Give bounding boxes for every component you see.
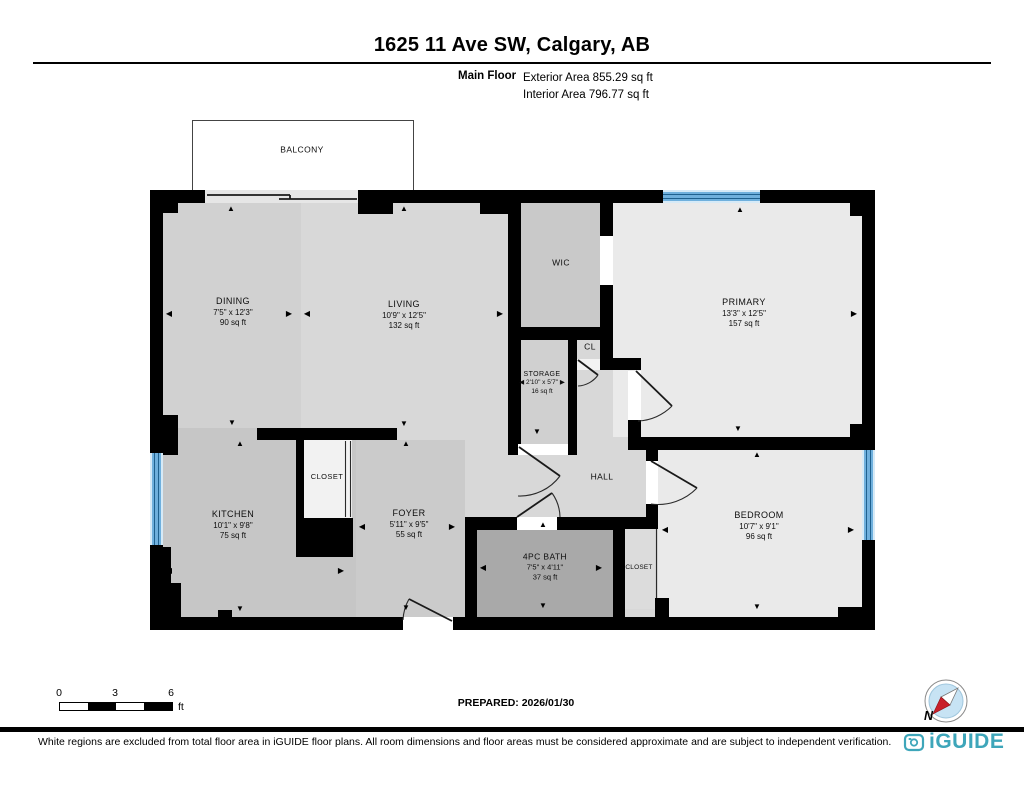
dim-arrow-left-icon: ◀ — [519, 379, 524, 386]
room-label-foyer: FOYER 5'11" x 9'5" 55 sq ft — [390, 508, 429, 540]
room-label-hall: HALL — [591, 471, 614, 482]
door-opening — [628, 371, 641, 420]
wall — [150, 617, 875, 630]
dim-arrow-up-icon: ▲ — [753, 451, 761, 459]
dim-arrow-right-icon: ▶ — [560, 379, 565, 386]
dim-arrow-down-icon: ▼ — [402, 604, 410, 612]
footer-bar — [0, 727, 1024, 732]
dim-arrow-up-icon: ▲ — [402, 440, 410, 448]
door-opening — [403, 617, 453, 630]
wall — [613, 517, 625, 630]
scale-unit: ft — [178, 701, 184, 713]
dim-arrow-down-icon: ▼ — [228, 419, 236, 427]
dim-arrow-up-icon: ▲ — [736, 206, 744, 214]
dim-arrow-left-icon: ◀ — [166, 310, 172, 318]
wall — [257, 428, 397, 440]
wall — [296, 440, 304, 518]
dim-arrow-right-icon: ▶ — [449, 523, 455, 531]
wall — [646, 437, 658, 461]
room-label-cl: CL — [584, 341, 596, 352]
room-label-bath: 4PC BATH 7'5" x 4'11" 37 sq ft — [523, 552, 567, 583]
door-opening — [518, 444, 568, 455]
dim-arrow-left-icon: ◀ — [166, 567, 172, 575]
window — [150, 453, 163, 545]
window — [862, 450, 875, 540]
footer-disclaimer: White regions are excluded from total fl… — [38, 736, 891, 748]
wall — [557, 517, 614, 530]
room-label-closet-entry: CLOSET — [311, 472, 343, 482]
door-opening — [517, 517, 557, 530]
dim-arrow-right-icon: ▶ — [851, 310, 857, 318]
dim-arrow-down-icon: ▼ — [400, 420, 408, 428]
wall — [358, 203, 393, 214]
iguide-logo: iGUIDE — [903, 730, 1004, 754]
wall — [150, 190, 163, 630]
wall — [646, 504, 658, 518]
wall — [480, 203, 508, 214]
dim-arrow-down-icon: ▼ — [533, 428, 541, 436]
wall — [171, 583, 181, 630]
room-label-wic: WIC — [552, 257, 570, 268]
page-title: 1625 11 Ave SW, Calgary, AB — [0, 34, 1024, 57]
wall — [465, 517, 477, 630]
wall — [600, 203, 613, 236]
balcony-slider-opening — [205, 190, 358, 203]
dim-arrow-up-icon: ▲ — [236, 440, 244, 448]
room-label-balcony: BALCONY — [280, 144, 323, 155]
room-balcony — [192, 120, 414, 194]
room-label-storage: STORAGE ◀ 2'10" x 5'7" ▶ 16 sq ft — [519, 370, 565, 396]
room-label-dining: DINING 7'5" x 12'3" 90 sq ft — [213, 296, 252, 328]
wall — [850, 203, 862, 216]
room-label-closet-bedroom: CLOSET — [625, 564, 652, 572]
dim-arrow-right-icon: ▶ — [338, 567, 344, 575]
wall — [163, 415, 178, 455]
interior-area: Interior Area 796.77 sq ft — [523, 87, 653, 104]
floor-plan-page: 1625 11 Ave SW, Calgary, AB Main Floor E… — [0, 0, 1024, 791]
dim-arrow-up-icon: ▲ — [400, 205, 408, 213]
wall — [838, 607, 862, 617]
dim-arrow-left-icon: ◀ — [480, 564, 486, 572]
dim-arrow-up-icon: ▲ — [539, 521, 547, 529]
dim-arrow-down-icon: ▼ — [539, 602, 547, 610]
iguide-logo-text: iGUIDE — [929, 730, 1004, 754]
wall — [218, 610, 232, 619]
dim-arrow-down-icon: ▼ — [753, 603, 761, 611]
room-label-kitchen: KITCHEN 10'1" x 9'8" 75 sq ft — [212, 509, 254, 541]
dim-arrow-right-icon: ▶ — [596, 564, 602, 572]
door-opening — [577, 359, 600, 370]
exterior-area: Exterior Area 855.29 sq ft — [523, 70, 653, 87]
floor-name: Main Floor — [458, 70, 516, 82]
door-opening — [600, 236, 613, 285]
wall — [613, 517, 658, 529]
wall — [600, 358, 641, 370]
dim-arrow-left-icon: ◀ — [304, 310, 310, 318]
wall — [655, 598, 669, 618]
dim-arrow-up-icon: ▲ — [533, 333, 541, 341]
room-label-primary: PRIMARY 13'3" x 12'5" 157 sq ft — [722, 297, 766, 329]
compass-north-label: N — [924, 709, 933, 723]
window — [663, 190, 760, 203]
dim-arrow-right-icon: ▶ — [497, 310, 503, 318]
dim-arrow-right-icon: ▶ — [848, 526, 854, 534]
wall — [163, 203, 178, 213]
scale-bar — [59, 702, 173, 711]
wall — [568, 340, 577, 455]
wall — [628, 437, 875, 450]
wall — [163, 547, 171, 630]
wall — [296, 518, 353, 557]
wall — [600, 340, 613, 359]
dim-arrow-left-icon: ◀ — [359, 523, 365, 531]
floor-areas: Exterior Area 855.29 sq ft Interior Area… — [523, 70, 653, 103]
dim-arrow-up-icon: ▲ — [227, 205, 235, 213]
wall — [600, 285, 613, 340]
prepared-date: PREPARED: 2026/01/30 — [366, 697, 666, 709]
dim-arrow-down-icon: ▼ — [734, 425, 742, 433]
wall — [862, 190, 875, 630]
iguide-logo-icon — [903, 732, 925, 752]
wall — [508, 327, 613, 340]
header-divider — [33, 62, 991, 64]
room-label-living: LIVING 10'9" x 12'5" 132 sq ft — [382, 299, 426, 331]
dim-arrow-down-icon: ▼ — [236, 605, 244, 613]
door-opening — [646, 461, 658, 504]
room-label-bedroom: BEDROOM 10'7" x 9'1" 96 sq ft — [734, 510, 783, 542]
dim-arrow-right-icon: ▶ — [286, 310, 292, 318]
wall — [850, 424, 862, 438]
dim-arrow-left-icon: ◀ — [662, 526, 668, 534]
